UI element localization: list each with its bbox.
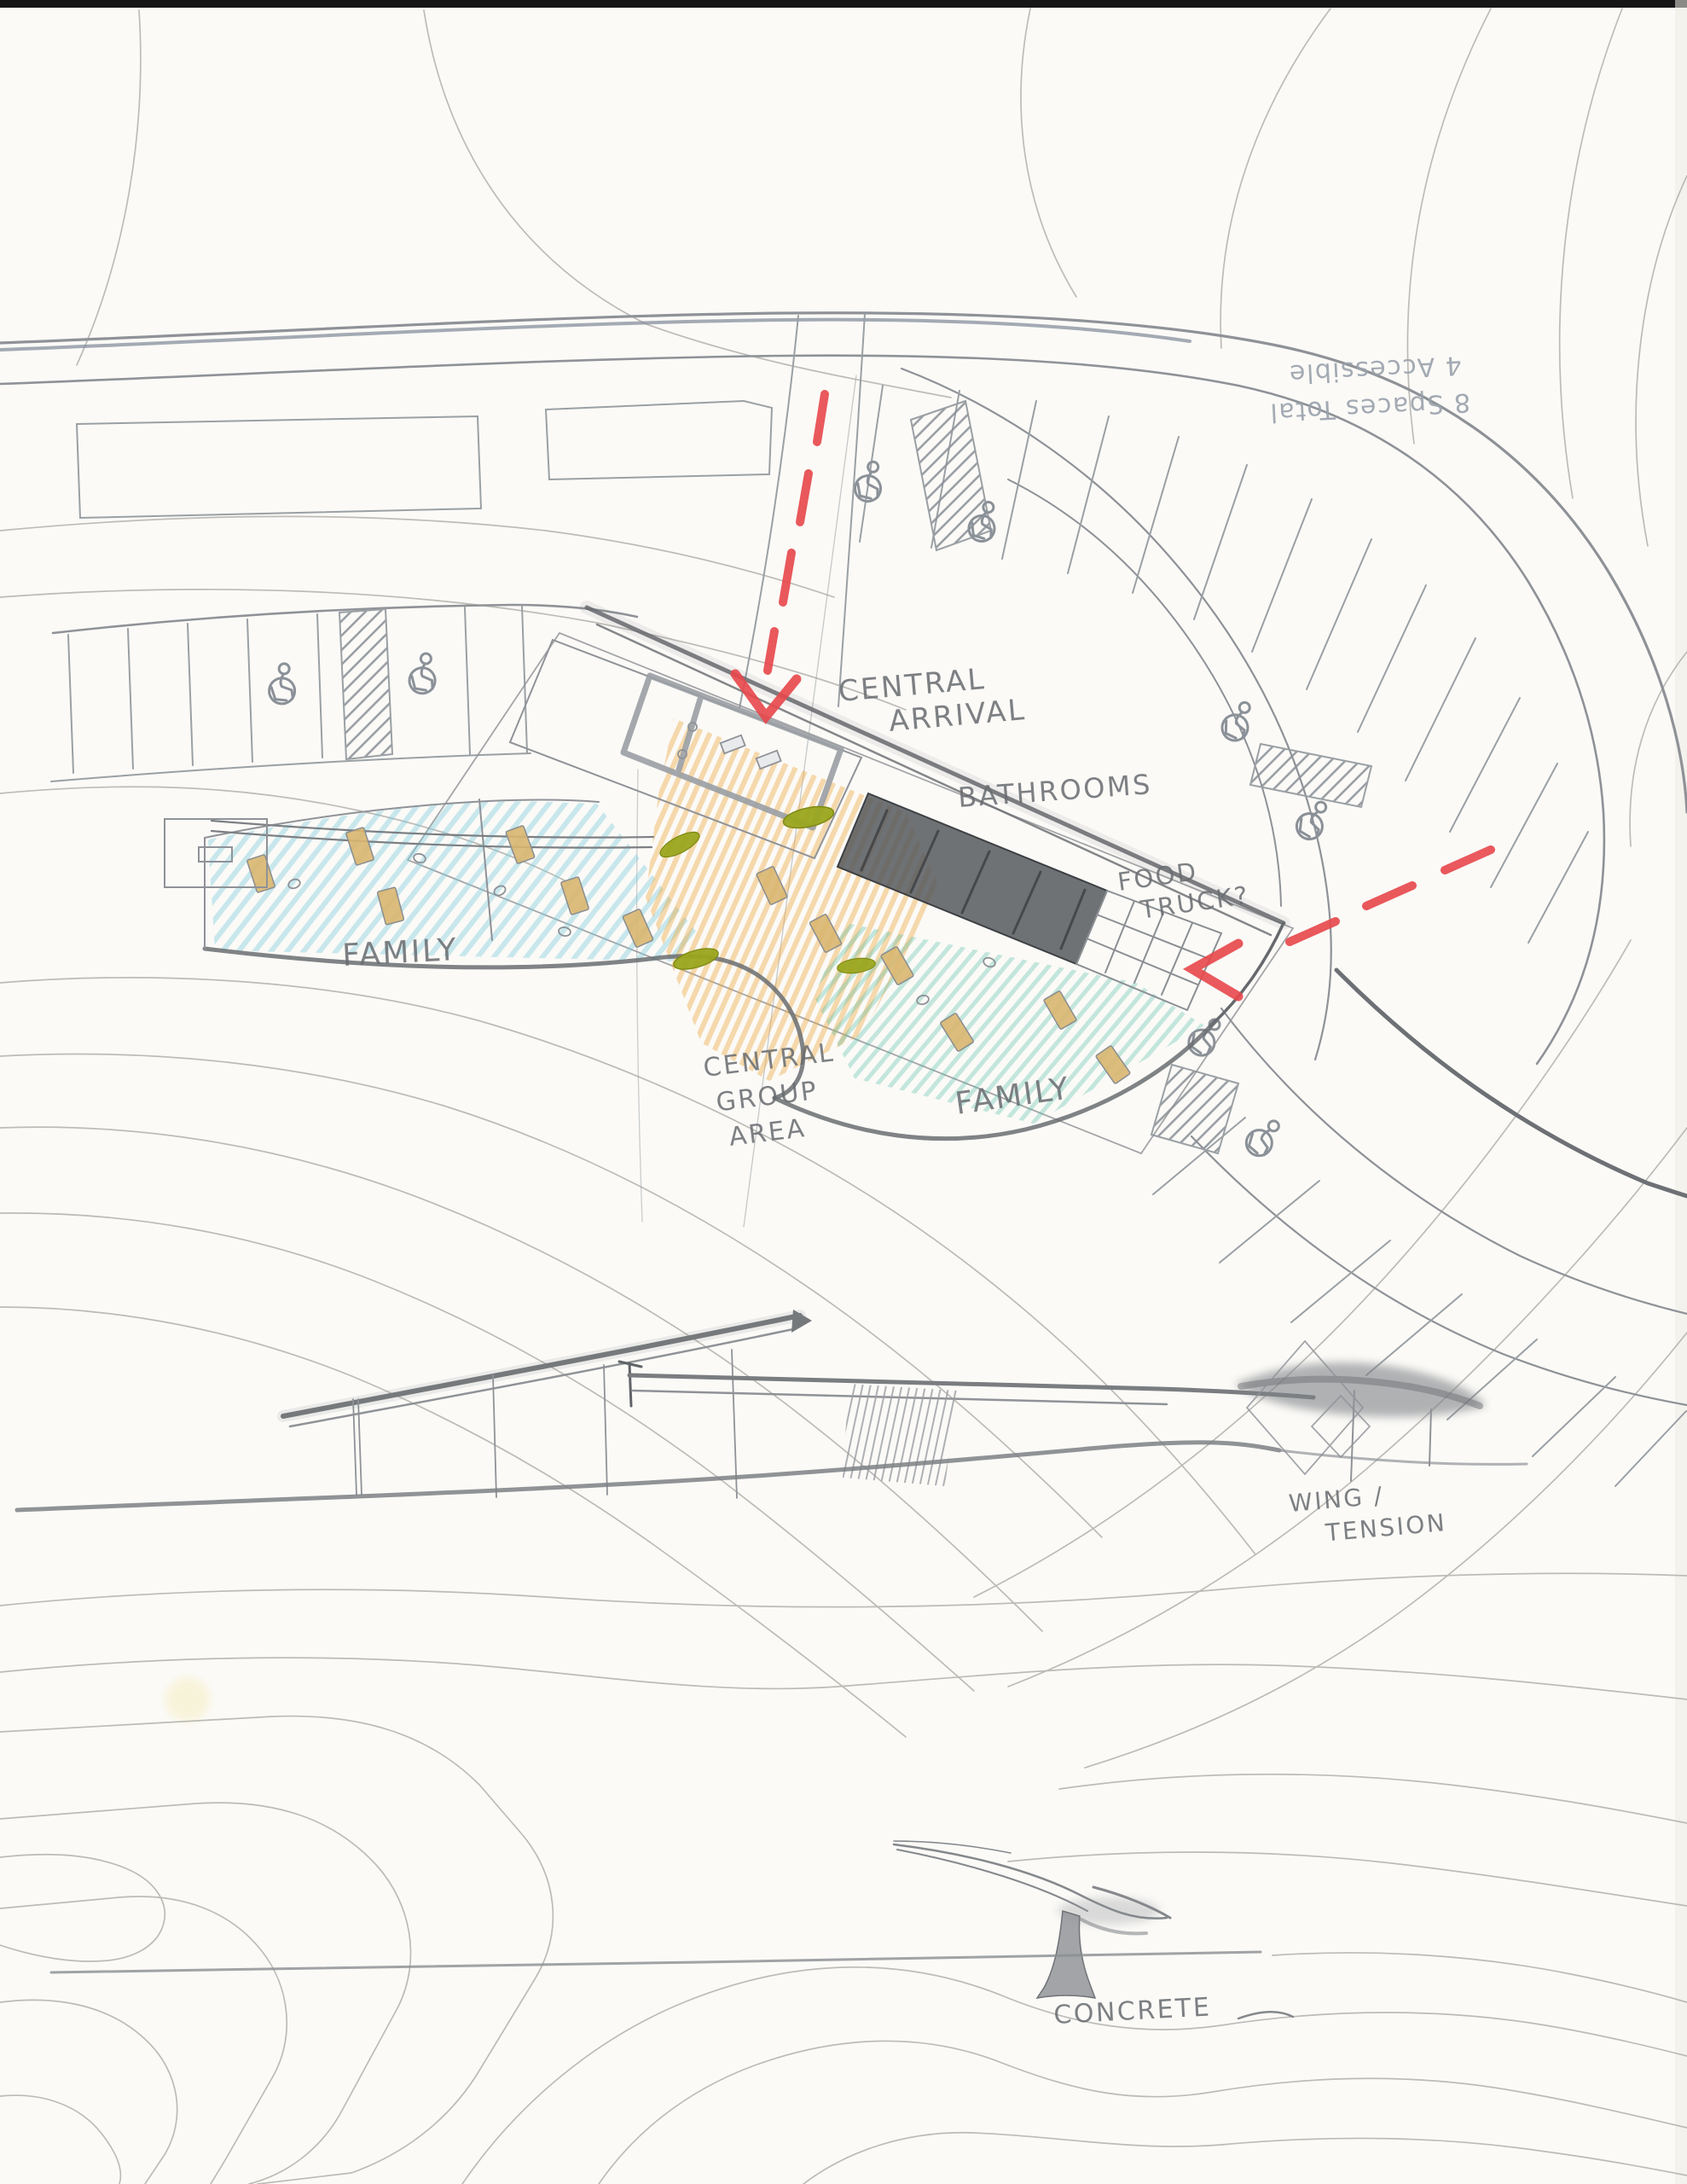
accessible-parking-icon xyxy=(267,662,299,706)
scan-artifacts xyxy=(0,0,1687,2184)
accessible-parking-icon xyxy=(1241,1114,1287,1160)
t-column xyxy=(619,1362,641,1406)
lower-stall-baseline xyxy=(1191,1136,1687,1405)
lower-road-edge xyxy=(1221,1008,1687,1314)
wing-smudge xyxy=(1235,1362,1486,1417)
accessible-parking-icon xyxy=(1218,698,1260,746)
no-parking-hatch xyxy=(1151,1065,1238,1153)
label-wing-tension: WING / TENSION xyxy=(1288,1476,1448,1550)
wing-canopy-sketch xyxy=(1235,1341,1486,1481)
parking-top-left xyxy=(77,401,772,518)
lower-road-heavy-edge xyxy=(1336,970,1687,1196)
contour-lines xyxy=(0,9,1687,2184)
no-parking-hatch xyxy=(911,401,991,550)
label-concrete: CONCRETE xyxy=(1053,1992,1213,2030)
hatched-screen xyxy=(843,1384,957,1486)
label-central-group-area: CENTRAL GROUP AREA xyxy=(702,1037,855,1154)
parking-island-rect xyxy=(77,416,481,518)
label-parking-count: 8 Spaces Total 4 Accessible xyxy=(1257,350,1471,428)
accessible-parking-icon xyxy=(852,459,889,505)
roofline-left xyxy=(283,1316,800,1416)
no-parking-hatch xyxy=(1250,744,1371,807)
parking-left-row xyxy=(51,605,637,781)
arrowhead-left xyxy=(1192,944,1238,996)
label-family-left: FAMILY xyxy=(341,932,459,973)
ground-line xyxy=(17,1443,1279,1510)
site-plan-sketch-canvas: CENTRAL ARRIVAL BATHROOMS FOOD TRUCK? FA… xyxy=(0,0,1687,2184)
curb-line xyxy=(51,753,530,781)
parking-island-rect xyxy=(546,401,772,479)
loop-island-edge xyxy=(1008,479,1281,906)
accessible-parking-icon xyxy=(407,651,441,696)
scanned-site-plan-sketch: CENTRAL ARRIVAL BATHROOMS FOOD TRUCK? FA… xyxy=(0,0,1687,2184)
red-route-arrow-main xyxy=(735,394,825,717)
no-parking-hatch xyxy=(339,609,392,759)
concrete-column-sketch xyxy=(51,1841,1293,2018)
label-bathrooms: BATHROOMS xyxy=(957,768,1153,814)
